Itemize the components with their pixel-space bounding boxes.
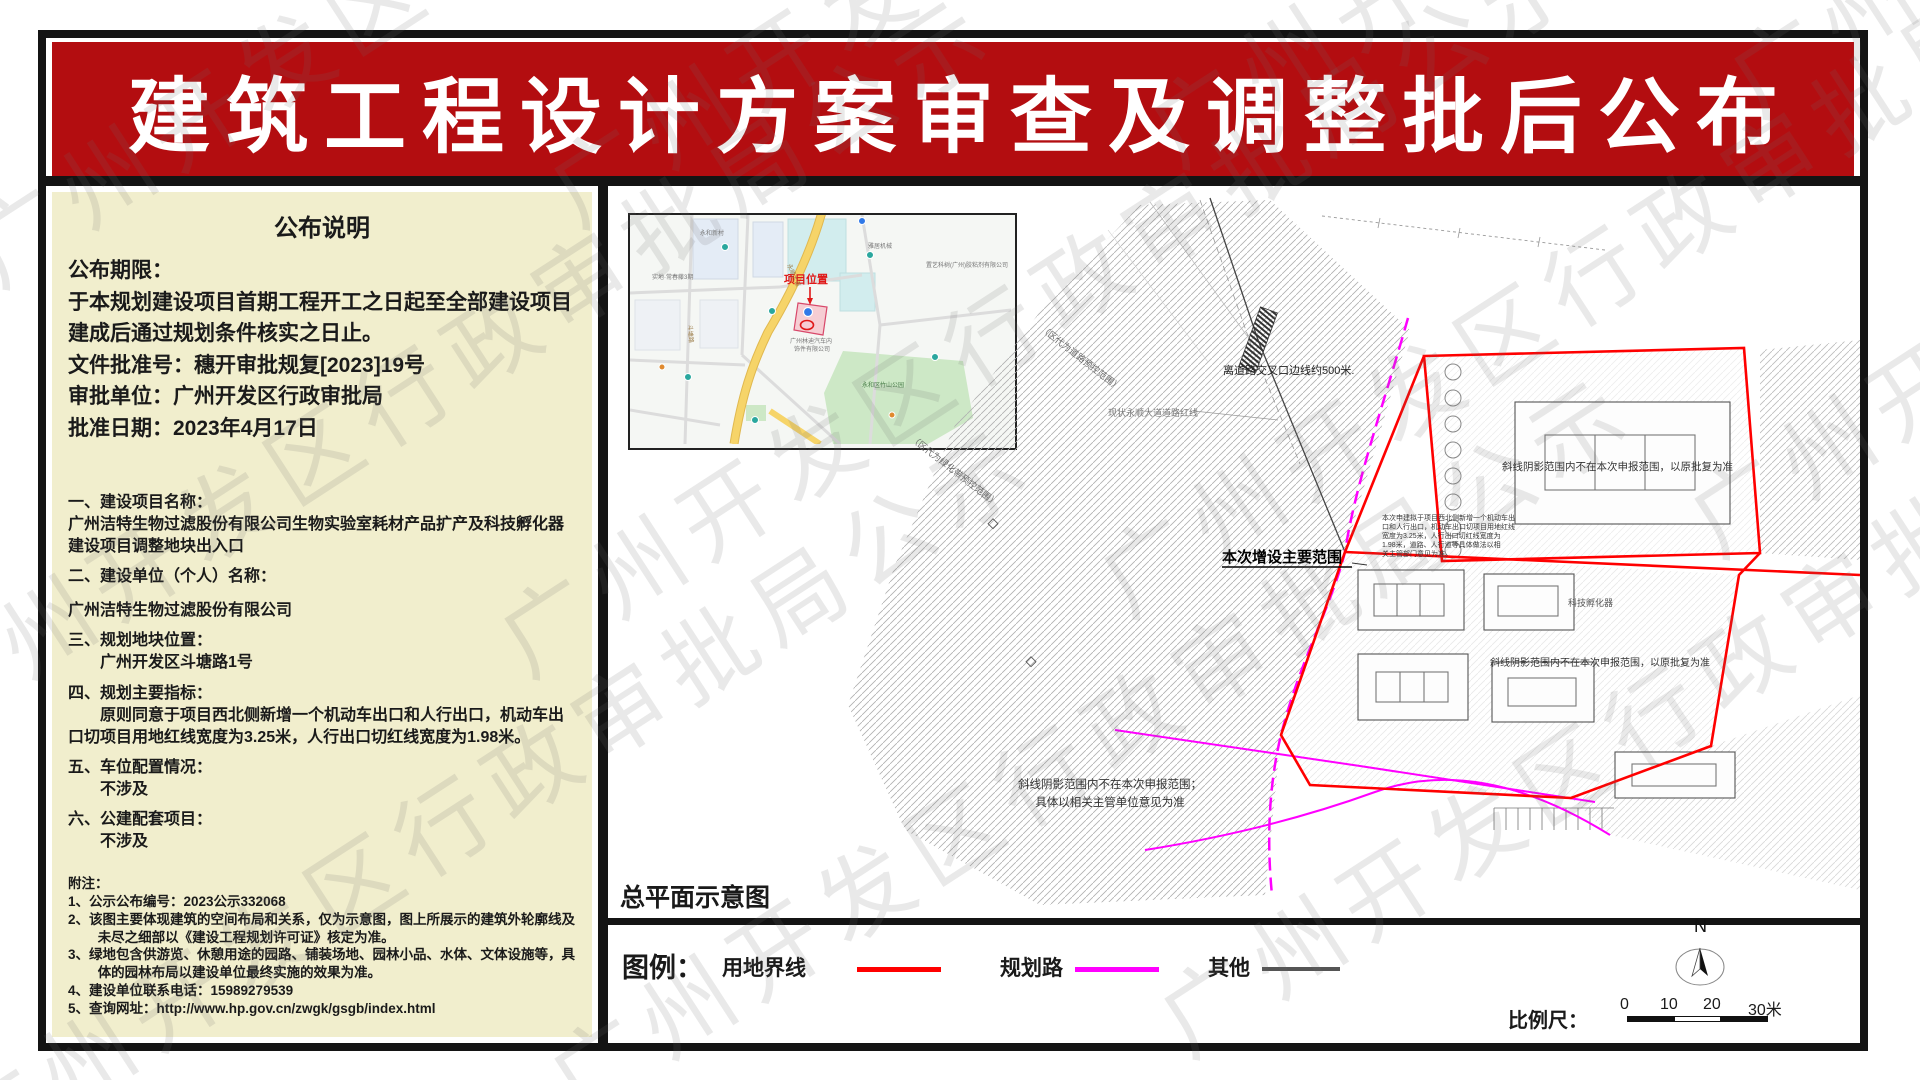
notice-heading: 公布说明	[68, 208, 576, 243]
hatch-note-line1: 斜线阴影范围内不在本次申报范围；	[1018, 777, 1202, 791]
existing-road-note: 现状永顺大道道路红线	[1108, 407, 1198, 418]
svg-text:1.98米，道路、人行道等具体做法以相: 1.98米，道路、人行道等具体做法以相	[1382, 540, 1501, 549]
scalebar-segment	[1674, 1016, 1721, 1022]
section-label: 三、规划地块位置：	[68, 630, 576, 652]
poster-title: 建筑工程设计方案审查及调整批后公布	[112, 50, 1794, 169]
svg-text:关主管部门意见为准。: 关主管部门意见为准。	[1382, 549, 1452, 558]
section-indicators: 四、规划主要指标： 原则同意于项目西北侧新增一个机动车出口和人行出口，机动车出口…	[68, 683, 576, 749]
section-parking: 五、车位配置情况： 不涉及	[68, 757, 576, 801]
svg-text:口和人行出口，机动车出口切项目用地红线: 口和人行出口，机动车出口切项目用地红线	[1382, 522, 1515, 531]
distance-note: 离道路交叉口边线约500米.	[1223, 363, 1354, 377]
legend-item-planned-road: 规划路	[1000, 952, 1063, 982]
note-item: 1、公示公布编号：2023公示332068	[68, 893, 576, 911]
section-label: 五、车位配置情况：	[68, 757, 576, 779]
hatch-note-right: 斜线阴影范围内不在本次申报范围，以原批复为准	[1502, 460, 1733, 473]
section-label: 一、建设项目名称：	[68, 492, 576, 514]
note-item: 4、建设单位联系电话：15989279539	[68, 982, 576, 1000]
notice-panel: 公布说明 公布期限： 于本规划建设项目首期工程开工之日起至全部建设项目建成后通过…	[52, 192, 592, 1037]
svg-text:宽度为3.25米，人行出口切红线宽度为: 宽度为3.25米，人行出口切红线宽度为	[1382, 531, 1501, 540]
legend-swatch-planned-road	[1075, 967, 1159, 972]
note-item: 3、绿地包含供游览、休憩用途的园路、铺装场地、园林小品、水体、文体设施等，具体的…	[68, 946, 576, 982]
legend-swatch-boundary	[857, 967, 941, 972]
section-body: 广州洁特生物过滤股份有限公司	[68, 600, 576, 622]
scalebar-segment	[1627, 1016, 1674, 1022]
section-label: 二、建设单位（个人）名称：	[68, 566, 576, 588]
scope-label: 本次增设主要范围	[1222, 548, 1342, 566]
period-label: 公布期限：	[68, 255, 576, 287]
section-body: 广州洁特生物过滤股份有限公司生物实验室耗材产品扩产及科技孵化器建设项目调整地块出…	[68, 514, 576, 558]
section-location: 三、规划地块位置： 广州开发区斗塘路1号	[68, 630, 576, 674]
hatch-note-lower: 斜线阴影范围内不在本次申报范围，以原批复为准	[1490, 656, 1710, 669]
section-body: 不涉及	[68, 831, 576, 853]
section-label: 四、规划主要指标：	[68, 683, 576, 705]
section-label: 六、公建配套项目：	[68, 809, 576, 831]
section-body: 不涉及	[68, 779, 576, 801]
section-public-facilities: 六、公建配套项目： 不涉及	[68, 809, 576, 853]
title-banner: 建筑工程设计方案审查及调整批后公布	[52, 42, 1854, 176]
notes-label: 附注：	[68, 875, 576, 893]
note-item: 2、该图主要体现建筑的空间布局和关系，仅为示意图，图上所展示的建筑外轮廓线及未尽…	[68, 911, 576, 947]
public-notice-poster: 建筑工程设计方案审查及调整批后公布 公布说明 公布期限： 于本规划建设项目首期工…	[0, 0, 1920, 1080]
site-plan: 离道路交叉口边线约500米. 现状永顺大道道路红线 本次增设主要范围 斜线阴影范…	[610, 190, 1860, 916]
section-body: 广州开发区斗塘路1号	[68, 652, 576, 674]
section-body: 原则同意于项目西北侧新增一个机动车出口和人行出口，机动车出口切项目用地红线宽度为…	[68, 705, 576, 749]
legend-item-other: 其他	[1208, 952, 1250, 982]
scalebar-tick: 10	[1660, 996, 1678, 1014]
legend-swatch-other	[1262, 967, 1340, 971]
approval-date: 批准日期：2023年4月17日	[68, 413, 576, 445]
legend-title: 图例：	[622, 946, 703, 985]
north-label: N	[1694, 916, 1707, 936]
section-project-name: 一、建设项目名称： 广州洁特生物过滤股份有限公司生物实验室耗材产品扩产及科技孵化…	[68, 492, 576, 558]
doc-number: 文件批准号：穗开审批规复[2023]19号	[68, 350, 576, 382]
hatch-area-right	[1760, 340, 1860, 560]
section-owner-name: 二、建设单位（个人）名称： 广州洁特生物过滤股份有限公司	[68, 566, 576, 622]
svg-text:本次申建拟于项目西北侧新增一个机动车出: 本次申建拟于项目西北侧新增一个机动车出	[1382, 513, 1515, 522]
north-compass: N	[1660, 912, 1740, 997]
notes-block: 附注： 1、公示公布编号：2023公示332068 2、该图主要体现建筑的空间布…	[68, 875, 576, 1018]
compass-needle-dark	[1700, 948, 1708, 976]
scalebar-tick: 20	[1703, 996, 1721, 1014]
scalebar-label: 比例尺：	[1508, 1004, 1588, 1033]
scalebar-tick: 0	[1620, 996, 1629, 1014]
banner-underline	[46, 176, 1860, 186]
vertical-divider	[598, 186, 608, 1043]
approval-authority: 审批单位：广州开发区行政审批局	[68, 381, 576, 413]
scalebar-segment	[1721, 1016, 1768, 1022]
incubator-label: 科技孵化器	[1568, 597, 1613, 608]
plan-caption: 总平面示意图	[620, 878, 770, 914]
site-plan-canvas: 离道路交叉口边线约500米. 现状永顺大道道路红线 本次增设主要范围 斜线阴影范…	[610, 190, 1860, 916]
compass-needle-light	[1692, 948, 1700, 976]
hatch-note-line2: 具体以相关主管单位意见为准	[1035, 795, 1185, 809]
period-body: 于本规划建设项目首期工程开工之日起至全部建设项目建成后通过规划条件核实之日止。	[68, 287, 576, 350]
note-query-url: 5、查询网址：http://www.hp.gov.cn/zwgk/gsgb/in…	[68, 1000, 576, 1018]
legend-item-boundary: 用地界线	[722, 952, 806, 982]
